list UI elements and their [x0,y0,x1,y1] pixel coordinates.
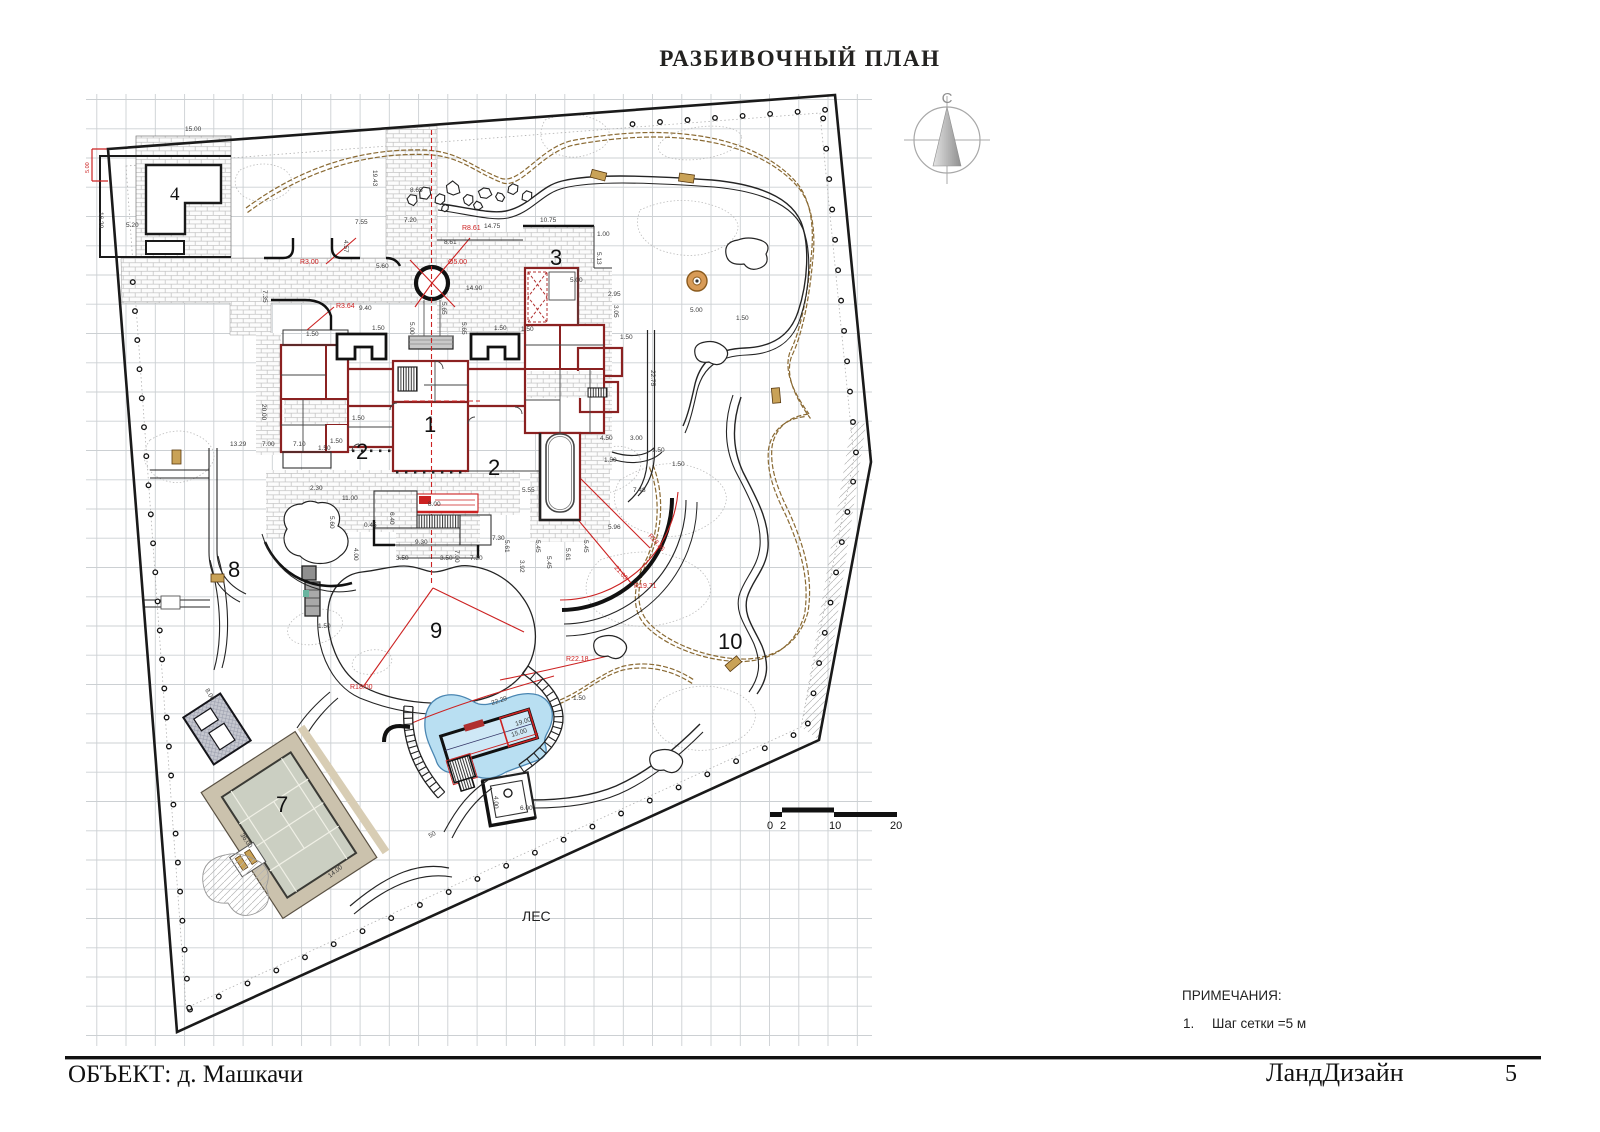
svg-text:1.50: 1.50 [494,325,507,332]
svg-text:1.50: 1.50 [306,331,319,338]
svg-text:5.55: 5.55 [522,487,535,494]
svg-text:4.50: 4.50 [600,435,613,442]
svg-text:9: 9 [430,618,442,643]
svg-text:1.50: 1.50 [620,334,633,341]
svg-text:3.50: 3.50 [440,555,453,562]
svg-text:7.00: 7.00 [262,441,275,448]
svg-text:4.00: 4.00 [352,548,359,561]
svg-text:2: 2 [488,455,500,480]
svg-text:5.60: 5.60 [376,263,389,270]
svg-text:R8.61: R8.61 [462,225,481,232]
svg-text:C: C [942,90,953,107]
svg-text:3.50: 3.50 [396,555,409,562]
svg-text:11.00: 11.00 [342,495,358,502]
svg-text:1.50: 1.50 [652,447,665,454]
svg-text:1.50: 1.50 [372,325,385,332]
svg-text:4.57: 4.57 [342,240,349,253]
svg-text:Ø5.00: Ø5.00 [448,259,467,266]
svg-text:0.45: 0.45 [364,522,377,529]
svg-text:19.43: 19.43 [371,170,378,187]
svg-text:5.65: 5.65 [440,302,447,315]
svg-text:7.10: 7.10 [293,441,306,448]
svg-text:3.92: 3.92 [518,560,525,573]
svg-text:10: 10 [718,629,742,654]
svg-text:4: 4 [170,184,180,205]
svg-text:14.75: 14.75 [484,223,501,230]
svg-text:2: 2 [356,439,368,464]
svg-text:5.61: 5.61 [564,548,571,561]
svg-text:15.00: 15.00 [185,126,202,133]
svg-text:R3.64: R3.64 [336,303,355,310]
svg-text:ЛЕС: ЛЕС [522,908,551,924]
svg-text:7.30: 7.30 [470,555,483,562]
svg-text:7.35: 7.35 [261,290,268,303]
svg-text:1.50: 1.50 [318,623,331,630]
svg-text:10: 10 [829,820,841,832]
svg-text:3: 3 [550,245,562,270]
svg-text:1.: 1. [1183,1016,1194,1031]
svg-text:20.00: 20.00 [260,404,267,421]
svg-text:5.45: 5.45 [582,540,589,553]
svg-text:5.00: 5.00 [408,322,415,335]
svg-text:5.20: 5.20 [126,222,139,229]
svg-text:1.50: 1.50 [736,315,749,322]
svg-text:8.00: 8.00 [428,501,441,508]
svg-text:7.55: 7.55 [355,219,368,226]
svg-text:4.00: 4.00 [492,796,499,809]
svg-text:ЛандДизайн: ЛандДизайн [1266,1058,1404,1087]
svg-text:8.61: 8.61 [444,239,457,246]
svg-text:8: 8 [228,557,240,582]
svg-text:5.96: 5.96 [608,524,621,531]
svg-text:РАЗБИВОЧНЫЙ ПЛАН: РАЗБИВОЧНЫЙ ПЛАН [659,46,940,71]
svg-text:ОБЪЕКТ: д. Машкачи: ОБЪЕКТ: д. Машкачи [68,1061,303,1088]
svg-text:R19.71: R19.71 [634,583,657,590]
svg-text:R3.00: R3.00 [300,259,319,266]
svg-text:1.50: 1.50 [573,695,586,702]
svg-text:2.95: 2.95 [608,291,621,298]
svg-text:1: 1 [424,412,436,437]
svg-text:9.40: 9.40 [359,305,372,312]
svg-text:1.50: 1.50 [318,445,331,452]
svg-text:6.00: 6.00 [520,805,533,812]
svg-text:7.48: 7.48 [633,487,646,494]
svg-text:3.00: 3.00 [630,435,643,442]
svg-text:0: 0 [767,820,773,832]
svg-text:7.00: 7.00 [453,550,460,563]
svg-text:3.05: 3.05 [612,305,619,318]
svg-text:16.20: 16.20 [97,212,104,229]
svg-text:9.30: 9.30 [415,539,428,546]
svg-text:R18.00: R18.00 [350,684,373,691]
svg-text:5.65: 5.65 [460,322,467,335]
svg-text:1.50: 1.50 [604,457,617,464]
svg-text:14.90: 14.90 [466,285,483,292]
svg-text:Шаг сетки =5 м: Шаг сетки =5 м [1212,1016,1306,1031]
svg-text:6.40: 6.40 [388,512,395,525]
svg-text:5.13: 5.13 [595,252,602,265]
svg-text:2: 2 [780,820,786,832]
svg-text:1.50: 1.50 [672,461,685,468]
svg-text:13.29: 13.29 [230,441,247,448]
svg-text:5.00: 5.00 [690,307,703,314]
svg-text:7: 7 [276,792,288,817]
svg-text:10.75: 10.75 [540,217,557,224]
svg-text:5.00: 5.00 [570,277,583,284]
svg-text:5.45: 5.45 [545,556,552,569]
svg-text:2.30: 2.30 [310,485,323,492]
svg-text:22.75: 22.75 [649,370,656,387]
svg-text:5.60: 5.60 [328,516,335,529]
svg-text:5: 5 [1505,1061,1517,1087]
svg-text:1.50: 1.50 [352,415,365,422]
svg-text:7.30: 7.30 [492,535,505,542]
svg-text:5.45: 5.45 [534,540,541,553]
svg-text:7.20: 7.20 [404,217,417,224]
svg-text:R22.18: R22.18 [566,656,589,663]
svg-text:1.50: 1.50 [330,438,343,445]
svg-text:20: 20 [890,820,902,832]
svg-text:1.00: 1.00 [597,231,610,238]
svg-text:1.50: 1.50 [521,326,534,333]
svg-text:ПРИМЕЧАНИЯ:: ПРИМЕЧАНИЯ: [1182,988,1282,1003]
svg-text:5.00: 5.00 [85,162,91,173]
svg-text:8.65: 8.65 [410,187,423,194]
